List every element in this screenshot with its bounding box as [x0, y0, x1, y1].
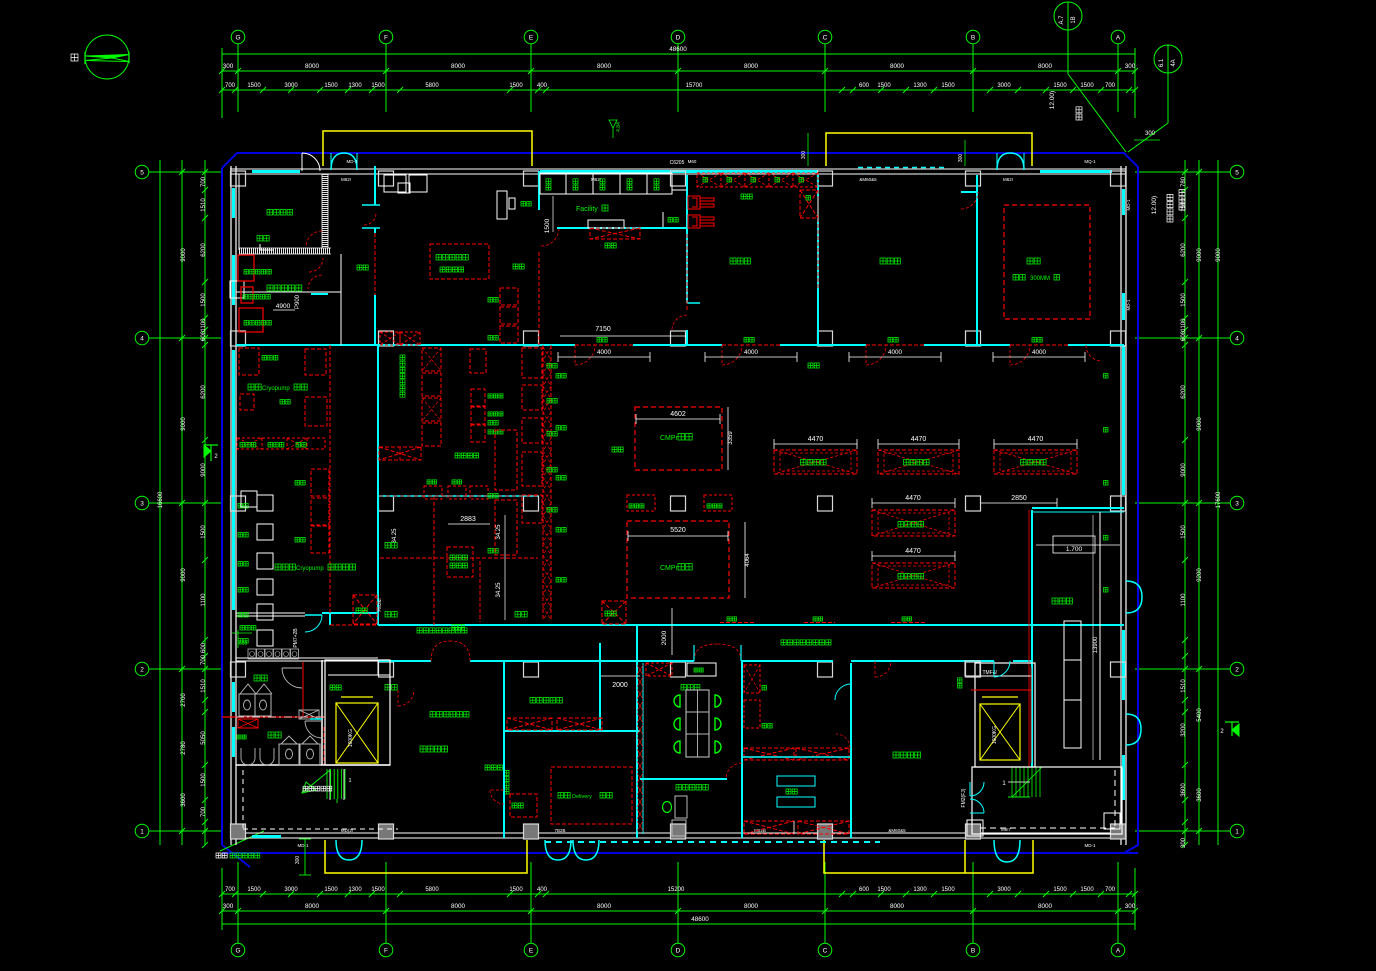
svg-text:1100: 1100 [201, 593, 207, 607]
svg-text:2000: 2000 [661, 630, 668, 645]
svg-text:3000: 3000 [284, 83, 298, 89]
svg-text:MD(2!: MD(2! [341, 828, 353, 833]
svg-text:3: 3 [140, 501, 144, 508]
svg-text:15700: 15700 [686, 83, 703, 89]
svg-text:4064: 4064 [745, 553, 751, 567]
svg-text:MD-1: MD-1 [1085, 843, 1096, 848]
svg-text:9000: 9000 [1181, 463, 1187, 477]
svg-text:2850: 2850 [1011, 495, 1027, 502]
svg-text:CMPr: CMPr [660, 565, 679, 572]
svg-text:2: 2 [140, 667, 144, 674]
svg-text:400: 400 [537, 83, 548, 89]
svg-text:3600: 3600 [1197, 788, 1203, 802]
svg-text:8000: 8000 [305, 63, 320, 70]
svg-text:2000: 2000 [612, 682, 628, 689]
svg-text:4000: 4000 [744, 349, 759, 356]
svg-text:400: 400 [537, 887, 548, 893]
svg-text:16600: 16600 [158, 491, 164, 508]
svg-text:9000: 9000 [1197, 417, 1203, 431]
svg-text:MQ-1: MQ-1 [1084, 159, 1096, 164]
svg-text:7B2B: 7B2B [554, 828, 565, 833]
svg-text:A.7: A.7 [1059, 15, 1065, 25]
svg-text:34.25: 34.25 [496, 582, 502, 598]
svg-text:1100: 1100 [201, 318, 207, 332]
svg-text:1500: 1500 [1080, 887, 1094, 893]
svg-text:Cryopump: Cryopump [296, 566, 324, 572]
svg-text:1500: 1500 [877, 83, 891, 89]
svg-text:1500: 1500 [1053, 887, 1067, 893]
svg-text:B: B [971, 35, 975, 42]
svg-text:300: 300 [958, 154, 964, 163]
svg-text:3359: 3359 [728, 431, 734, 445]
svg-text:1600KG: 1600KG [348, 729, 354, 747]
svg-text:700: 700 [1105, 83, 1116, 89]
svg-text:G: G [235, 35, 240, 42]
svg-text:700: 700 [225, 887, 236, 893]
svg-text:1500: 1500 [371, 887, 385, 893]
svg-text:FM2(FJ): FM2(FJ) [961, 788, 967, 807]
svg-text:34.25: 34.25 [392, 528, 398, 544]
svg-text:1500: 1500 [247, 83, 261, 89]
svg-text:5520: 5520 [670, 527, 686, 534]
svg-text:1100: 1100 [1181, 593, 1187, 607]
svg-text:1: 1 [140, 829, 144, 836]
svg-text:300: 300 [223, 63, 234, 70]
svg-text:3200: 3200 [1181, 723, 1187, 737]
svg-text:8000: 8000 [597, 903, 612, 910]
svg-text:300: 300 [223, 903, 234, 910]
svg-text:3: 3 [1235, 501, 1239, 508]
svg-text:1: 1 [1235, 829, 1239, 836]
svg-text:1500: 1500 [1181, 525, 1187, 539]
svg-text:780: 780 [1181, 176, 1187, 187]
svg-text:300: 300 [1125, 63, 1136, 70]
svg-text:1500: 1500 [941, 83, 955, 89]
svg-text:1.700: 1.700 [1066, 546, 1083, 553]
svg-text:MD-1: MD-1 [1126, 299, 1131, 310]
svg-text:TMF&!: TMF&! [983, 670, 998, 676]
svg-text:5: 5 [1235, 170, 1239, 177]
svg-text:P900: P900 [295, 294, 301, 309]
svg-text:4000: 4000 [597, 349, 612, 356]
svg-text:2883: 2883 [460, 516, 476, 523]
svg-text:8000: 8000 [305, 903, 320, 910]
svg-text:5800: 5800 [425, 83, 439, 89]
svg-text:1500: 1500 [201, 525, 207, 539]
svg-text:4000: 4000 [888, 349, 903, 356]
svg-text:4470: 4470 [808, 436, 824, 443]
svg-text:34.25: 34.25 [496, 524, 502, 540]
svg-text:700: 700 [225, 83, 236, 89]
svg-text:8000: 8000 [890, 63, 905, 70]
svg-text:2780: 2780 [181, 741, 187, 755]
svg-text:1500: 1500 [509, 887, 523, 893]
svg-text:48600: 48600 [669, 46, 687, 53]
svg-text:7150: 7150 [595, 326, 611, 333]
svg-text:9000: 9000 [181, 568, 187, 582]
svg-text:5050: 5050 [201, 731, 207, 745]
svg-text:1500: 1500 [324, 887, 338, 893]
svg-text:1500: 1500 [1080, 83, 1094, 89]
svg-text:3000: 3000 [997, 887, 1011, 893]
svg-text:1100: 1100 [1181, 318, 1187, 332]
svg-text:15200: 15200 [668, 887, 685, 893]
svg-text:G: G [235, 948, 240, 955]
svg-text:1500: 1500 [371, 83, 385, 89]
svg-text:8000: 8000 [1038, 63, 1053, 70]
svg-text:1600KG: 1600KG [992, 726, 998, 744]
svg-text:E: E [529, 35, 534, 42]
svg-text:4470: 4470 [1028, 436, 1044, 443]
svg-text:1300: 1300 [913, 83, 927, 89]
svg-text:8000: 8000 [451, 63, 466, 70]
svg-text:300: 300 [801, 151, 807, 160]
svg-text:13900: 13900 [1093, 636, 1099, 653]
svg-text:Cryopump: Cryopump [262, 386, 290, 392]
svg-text:D: D [676, 35, 681, 42]
svg-text:1500: 1500 [247, 887, 261, 893]
svg-text:9000: 9000 [181, 417, 187, 431]
svg-text:700: 700 [201, 176, 207, 187]
svg-text:MD-1: MD-1 [347, 159, 358, 164]
svg-text:600: 600 [201, 642, 207, 653]
svg-text:M6!7: M6!7 [1001, 827, 1012, 832]
svg-text:F: F [384, 948, 388, 955]
svg-text:3600: 3600 [181, 793, 187, 807]
svg-text:1510: 1510 [1181, 679, 1187, 693]
svg-text:1500: 1500 [509, 83, 523, 89]
svg-text:6200: 6200 [1181, 385, 1187, 399]
svg-text:9000: 9000 [1216, 248, 1222, 262]
svg-text:9200: 9200 [1197, 568, 1203, 582]
svg-text:4.84: 4.84 [616, 122, 622, 132]
svg-text:2700: 2700 [181, 693, 187, 707]
svg-text:700: 700 [201, 654, 207, 665]
svg-text:1500: 1500 [201, 293, 207, 307]
svg-text:F: F [384, 35, 388, 42]
svg-text:M62!: M62! [1003, 177, 1013, 182]
svg-text:8000: 8000 [1038, 903, 1053, 910]
svg-text:4A: 4A [1171, 59, 1177, 66]
svg-text:1510: 1510 [201, 679, 207, 693]
svg-text:8000: 8000 [744, 63, 759, 70]
svg-text:4470: 4470 [911, 436, 927, 443]
svg-text:300: 300 [1181, 837, 1187, 848]
svg-text:600: 600 [859, 887, 870, 893]
svg-text:Delivery: Delivery [572, 794, 592, 800]
svg-text:PM7+2B: PM7+2B [293, 628, 299, 648]
svg-text:3600: 3600 [1181, 783, 1187, 797]
svg-text:8000: 8000 [451, 903, 466, 910]
svg-text:E: E [529, 948, 534, 955]
svg-text:4: 4 [140, 336, 144, 343]
svg-text:&M60&5: &M60&5 [859, 177, 877, 182]
svg-text:&M60&5: &M60&5 [888, 828, 906, 833]
svg-text:5400: 5400 [1197, 708, 1203, 722]
svg-text:C6205: C6205 [670, 160, 685, 166]
svg-text:1: 1 [348, 778, 351, 784]
svg-text:300: 300 [295, 856, 301, 865]
svg-text:300: 300 [1125, 903, 1136, 910]
svg-text:1500: 1500 [1053, 83, 1067, 89]
svg-text:300: 300 [1145, 131, 1156, 137]
svg-text:12.00): 12.00) [1049, 91, 1056, 109]
svg-text:5: 5 [140, 170, 144, 177]
svg-text:1B: 1B [1071, 16, 1077, 23]
svg-text:600: 600 [201, 330, 207, 341]
svg-text:1500: 1500 [324, 83, 338, 89]
svg-text:4602: 4602 [670, 411, 686, 418]
svg-text:1500: 1500 [201, 773, 207, 787]
svg-text:700: 700 [1105, 887, 1116, 893]
svg-text:4000: 4000 [1032, 349, 1047, 356]
svg-text:M60: M60 [688, 159, 697, 164]
svg-text:2: 2 [1235, 667, 1239, 674]
svg-text:600: 600 [859, 83, 870, 89]
svg-text:6200: 6200 [201, 243, 207, 257]
svg-text:48600: 48600 [691, 916, 709, 923]
svg-text:600: 600 [1181, 330, 1187, 341]
svg-text:9000: 9000 [1197, 248, 1203, 262]
svg-text:6200: 6200 [201, 385, 207, 399]
svg-text:9000: 9000 [201, 463, 207, 477]
svg-text:4: 4 [1235, 336, 1239, 343]
svg-text:C: C [823, 948, 828, 955]
svg-text:3000: 3000 [997, 83, 1011, 89]
svg-text:MD-1: MD-1 [1126, 199, 1131, 210]
svg-text:1300: 1300 [348, 887, 362, 893]
svg-text:B: B [971, 948, 975, 955]
svg-text:1300: 1300 [348, 83, 362, 89]
svg-text:5800: 5800 [425, 887, 439, 893]
svg-text:9000: 9000 [181, 248, 187, 262]
svg-text:M62!: M62! [341, 177, 351, 182]
svg-text:17600: 17600 [1216, 491, 1222, 508]
svg-text:4470: 4470 [905, 495, 921, 502]
svg-text:1300: 1300 [913, 887, 927, 893]
svg-text:1510: 1510 [201, 198, 207, 212]
svg-text:8000: 8000 [744, 903, 759, 910]
svg-text:C: C [823, 35, 828, 42]
svg-text:1500: 1500 [1181, 293, 1187, 307]
svg-text:300MM: 300MM [1030, 276, 1050, 282]
svg-text:A: A [1116, 948, 1121, 955]
svg-text:CMPr: CMPr [660, 435, 679, 442]
svg-text:12.00): 12.00) [1151, 196, 1158, 214]
svg-text:A: A [1116, 35, 1121, 42]
svg-text:1500: 1500 [877, 887, 891, 893]
svg-text:700: 700 [201, 806, 207, 817]
svg-text:1500: 1500 [544, 218, 551, 233]
svg-text:4900: 4900 [276, 303, 291, 310]
svg-text:4470: 4470 [905, 548, 921, 555]
svg-text:D: D [676, 948, 681, 955]
svg-text:6.1: 6.1 [1159, 58, 1165, 67]
svg-text:FM2&!: FM2&! [377, 598, 382, 611]
svg-text:Facility: Facility [576, 206, 598, 213]
svg-text:6200: 6200 [1181, 243, 1187, 257]
svg-text:M62!: M62! [591, 177, 601, 182]
svg-text:8000: 8000 [597, 63, 612, 70]
svg-text:8000: 8000 [890, 903, 905, 910]
svg-text:MD-1: MD-1 [298, 843, 309, 848]
svg-text:3000: 3000 [284, 887, 298, 893]
svg-text:1500: 1500 [941, 887, 955, 893]
